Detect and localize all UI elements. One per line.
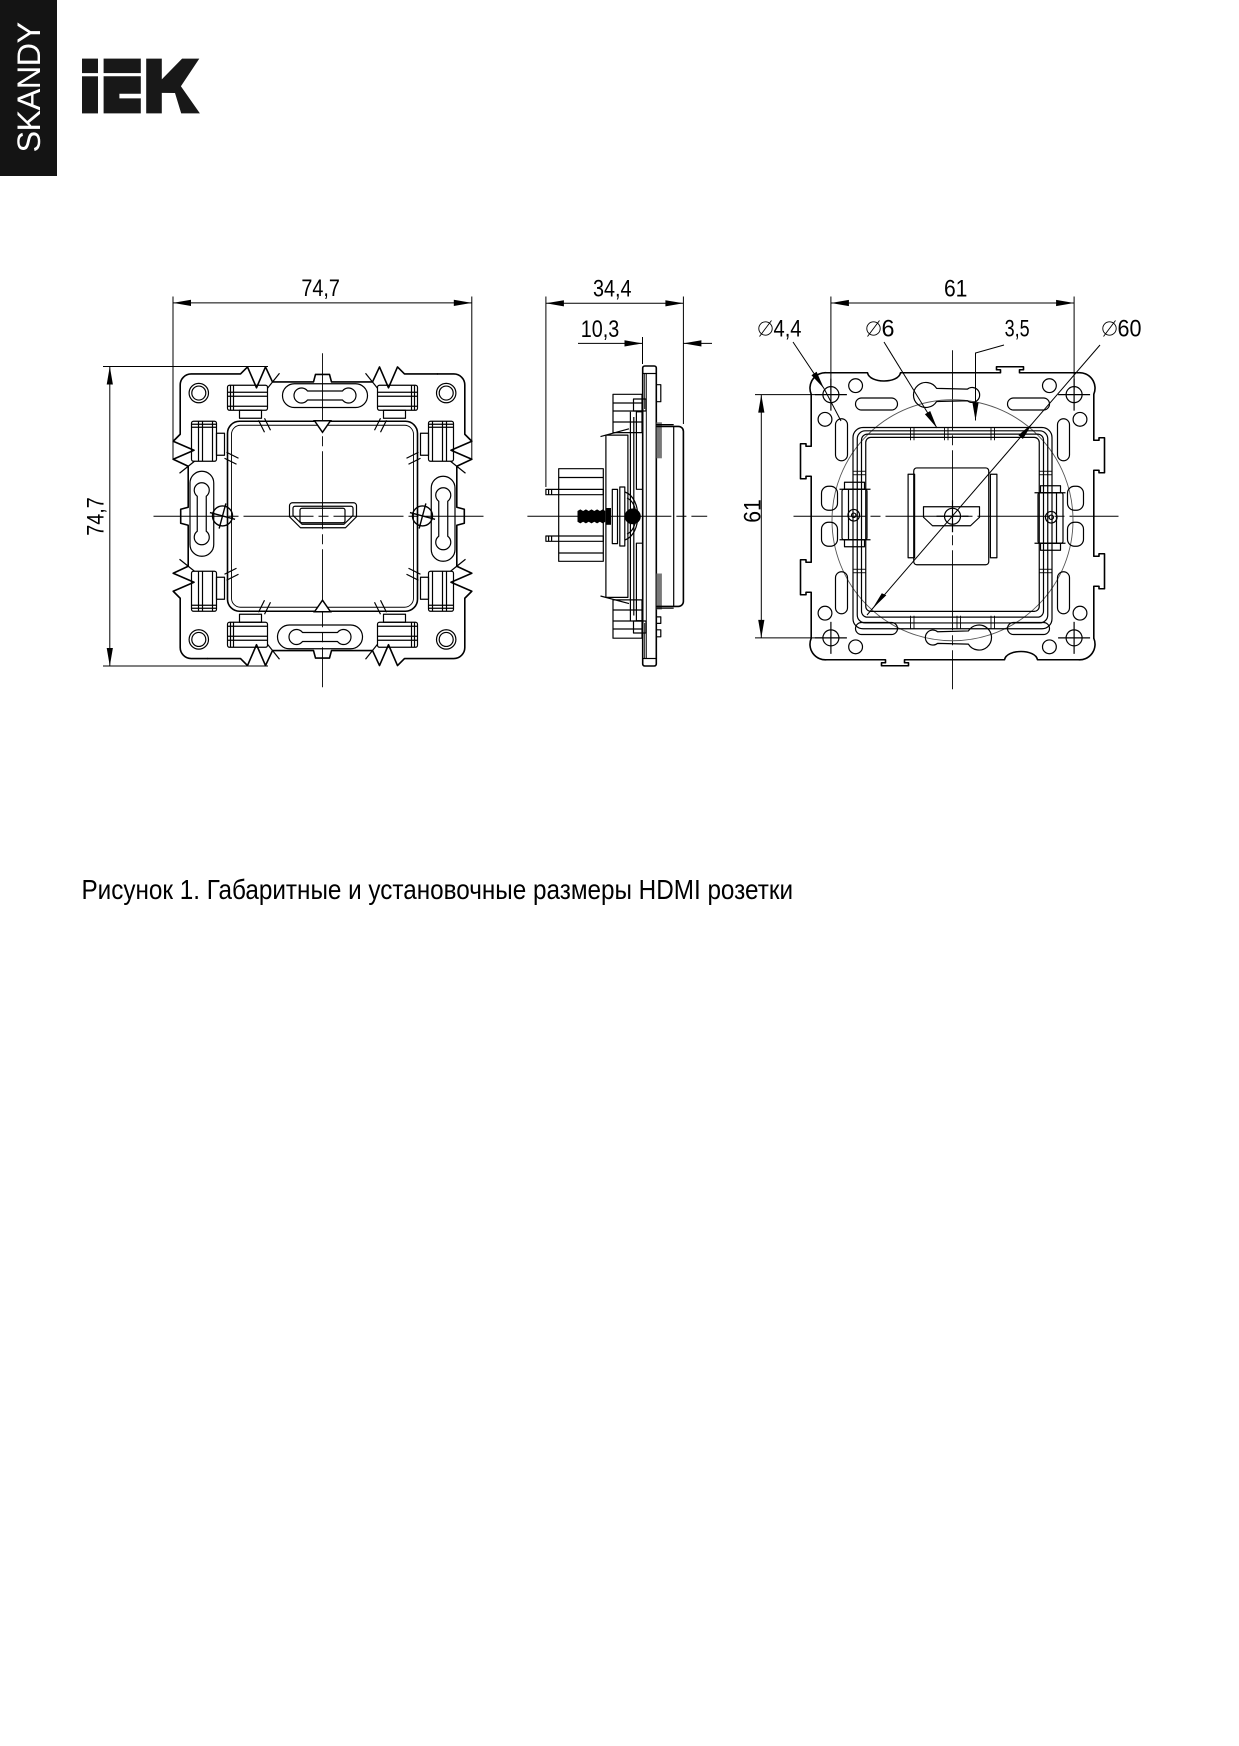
- svg-text:6: 6: [882, 316, 895, 343]
- svg-text:Рисунок 1. Габаритные и устано: Рисунок 1. Габаритные и установочные раз…: [82, 874, 794, 905]
- svg-text:74,7: 74,7: [301, 275, 340, 302]
- svg-text:34,4: 34,4: [593, 276, 632, 303]
- svg-text:60: 60: [1118, 316, 1142, 343]
- svg-text:4,4: 4,4: [774, 316, 802, 343]
- svg-text:61: 61: [740, 499, 767, 523]
- svg-text:3,5: 3,5: [1005, 316, 1030, 343]
- svg-text:74,7: 74,7: [83, 497, 110, 536]
- svg-text:10,3: 10,3: [581, 316, 620, 343]
- svg-text:61: 61: [944, 276, 968, 303]
- svg-text:SKANDY: SKANDY: [11, 22, 47, 152]
